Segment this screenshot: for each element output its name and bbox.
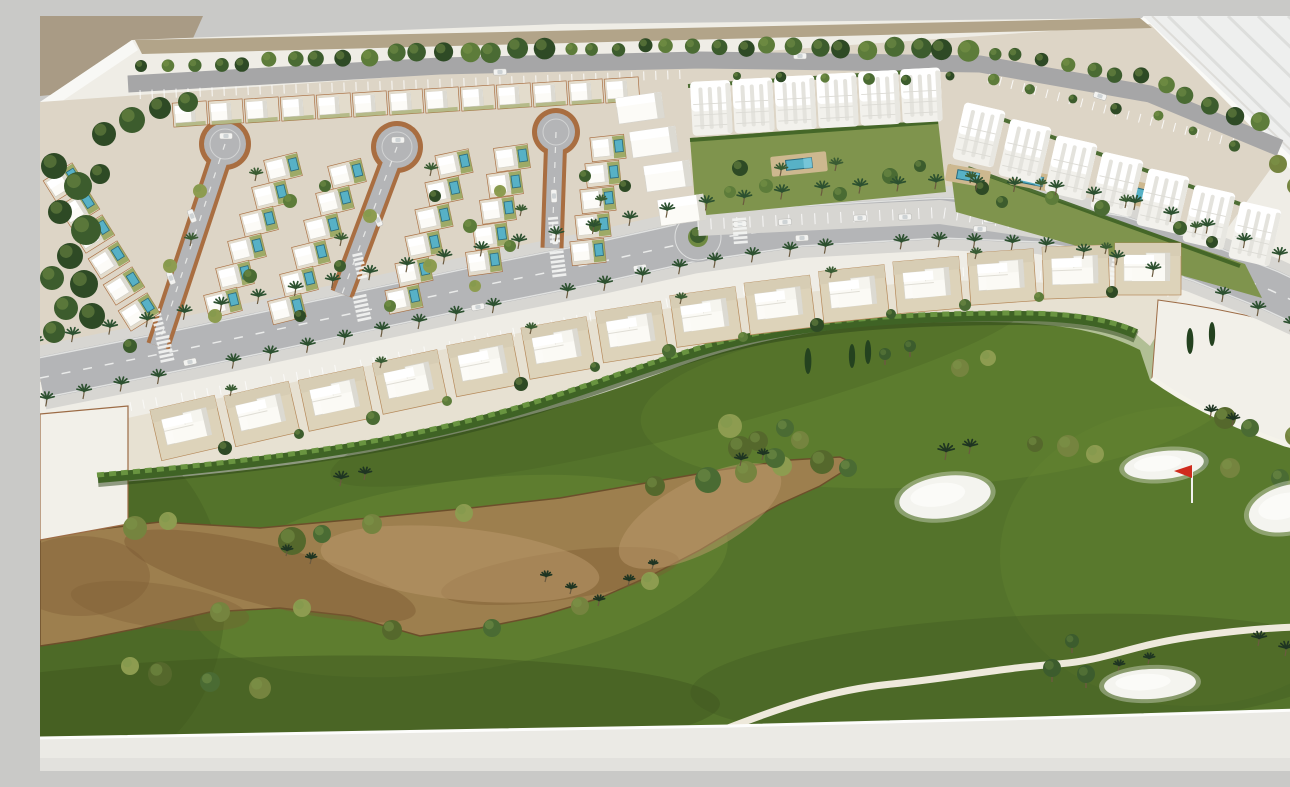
car: [778, 219, 791, 226]
car: [220, 133, 233, 139]
model-photo-canvas: [40, 16, 1290, 771]
villa: [1115, 243, 1181, 295]
estate-house: [465, 248, 502, 276]
villa: [744, 275, 816, 335]
villa: [818, 265, 889, 324]
car: [973, 226, 986, 232]
estate-house: [352, 91, 388, 117]
villa: [893, 256, 963, 314]
villa: [967, 249, 1036, 305]
car: [493, 69, 506, 75]
model-scene: [40, 16, 1290, 771]
estate-house: [460, 85, 496, 111]
car: [551, 189, 557, 202]
scale-model-photo: Photograph of an architectural scale mod…: [40, 16, 1290, 771]
villa: [1042, 245, 1110, 299]
apartment-block: [732, 77, 775, 133]
estate-house: [280, 95, 316, 121]
estate-house: [424, 87, 460, 113]
estate-house: [568, 79, 604, 105]
car: [392, 137, 405, 143]
apartment-block: [690, 80, 733, 136]
apartment-block: [774, 75, 817, 131]
estate-house: [496, 83, 532, 109]
estate-house: [208, 99, 244, 125]
estate-house: [493, 144, 530, 172]
estate-house: [244, 97, 280, 123]
estate-house: [479, 196, 516, 224]
villa: [595, 301, 668, 363]
estate-house: [590, 134, 626, 161]
car: [795, 235, 808, 242]
estate-house: [316, 93, 352, 119]
estate-house: [532, 81, 568, 107]
car: [853, 215, 866, 221]
car: [898, 214, 911, 220]
estate-house: [570, 238, 606, 265]
estate-house: [388, 89, 424, 115]
